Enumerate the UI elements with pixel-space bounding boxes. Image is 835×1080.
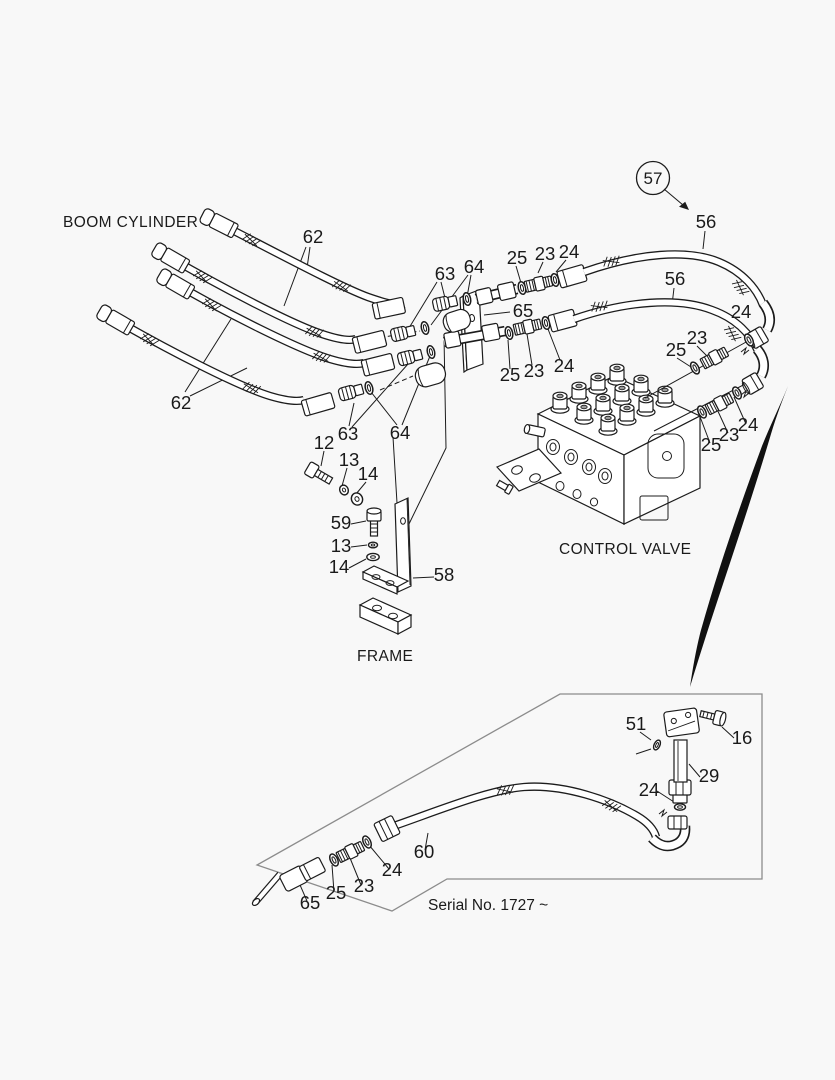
balloon-57: 57 (637, 162, 690, 211)
part-number-callout: 23 (524, 360, 545, 381)
washer-14 (349, 491, 364, 507)
part-number-callout: 24 (738, 414, 759, 435)
boom-cylinder-label: BOOM CYLINDER (63, 214, 198, 231)
part-number-callout: 62 (171, 392, 192, 413)
part-number-callout: 25 (326, 882, 347, 903)
washer-13 (338, 484, 350, 497)
part-number-callout: 65 (300, 892, 321, 913)
part-number-callout: 63 (338, 423, 359, 444)
hose-end-cap (150, 242, 190, 274)
part-number-callout: 24 (382, 859, 403, 880)
frame-label: FRAME (357, 648, 413, 665)
part-number-callout: 29 (699, 765, 720, 786)
washer-13 (369, 542, 378, 548)
part-number-callout: 12 (314, 432, 335, 453)
part-number-callout: 64 (464, 256, 485, 277)
bolt-16 (699, 707, 727, 727)
part-number-callout: 63 (435, 263, 456, 284)
frame-base-plate (360, 598, 411, 634)
part-number-callout: 25 (500, 364, 521, 385)
part-number-callout: 58 (434, 564, 455, 585)
control-valve-assembly (496, 364, 700, 524)
part-number-callout: 13 (331, 535, 352, 556)
part-number-callout: 23 (354, 875, 375, 896)
part-number-callout: 24 (639, 779, 660, 800)
balloon-number: 57 (644, 169, 663, 188)
part-number-callout: 25 (666, 339, 687, 360)
part-number-callout: 24 (731, 301, 752, 322)
part-number-callout: 23 (719, 424, 740, 445)
part-number-callout: 14 (358, 463, 379, 484)
o-ring-51 (652, 739, 662, 751)
part-number-callout: 23 (535, 243, 556, 264)
washer-14 (367, 553, 379, 560)
part-number-callout: 60 (414, 841, 435, 862)
part-number-callout: 62 (303, 226, 324, 247)
parts-diagram: 57 (0, 0, 835, 1080)
tube-29 (663, 708, 699, 803)
part-number-callout: 59 (331, 512, 352, 533)
parts-diagram-page: 57 (0, 0, 835, 1080)
hose-end-cap (199, 208, 239, 239)
part-number-callout: 64 (390, 422, 411, 443)
serial-number-note: Serial No. 1727 ~ (428, 897, 548, 914)
part-number-callout: 13 (339, 449, 360, 470)
part-number-callout: 25 (507, 247, 528, 268)
part-number-callout: 56 (696, 211, 717, 232)
part-number-callout: 14 (329, 556, 350, 577)
part-number-callout: 51 (626, 713, 647, 734)
frame-bracket-assembly (304, 461, 411, 634)
part-number-callout: 24 (559, 241, 580, 262)
part-number-callout: 65 (513, 300, 534, 321)
part-number-callout: 56 (665, 268, 686, 289)
serial-detail-assembly (251, 707, 727, 907)
hose-end-cap (95, 304, 135, 336)
part-number-callout: 24 (554, 355, 575, 376)
control-valve-label: CONTROL VALVE (559, 541, 691, 558)
bolt-59 (367, 508, 381, 536)
part-number-callout: 16 (732, 727, 753, 748)
part-number-callout: 23 (687, 327, 708, 348)
bolt-12 (304, 461, 334, 487)
